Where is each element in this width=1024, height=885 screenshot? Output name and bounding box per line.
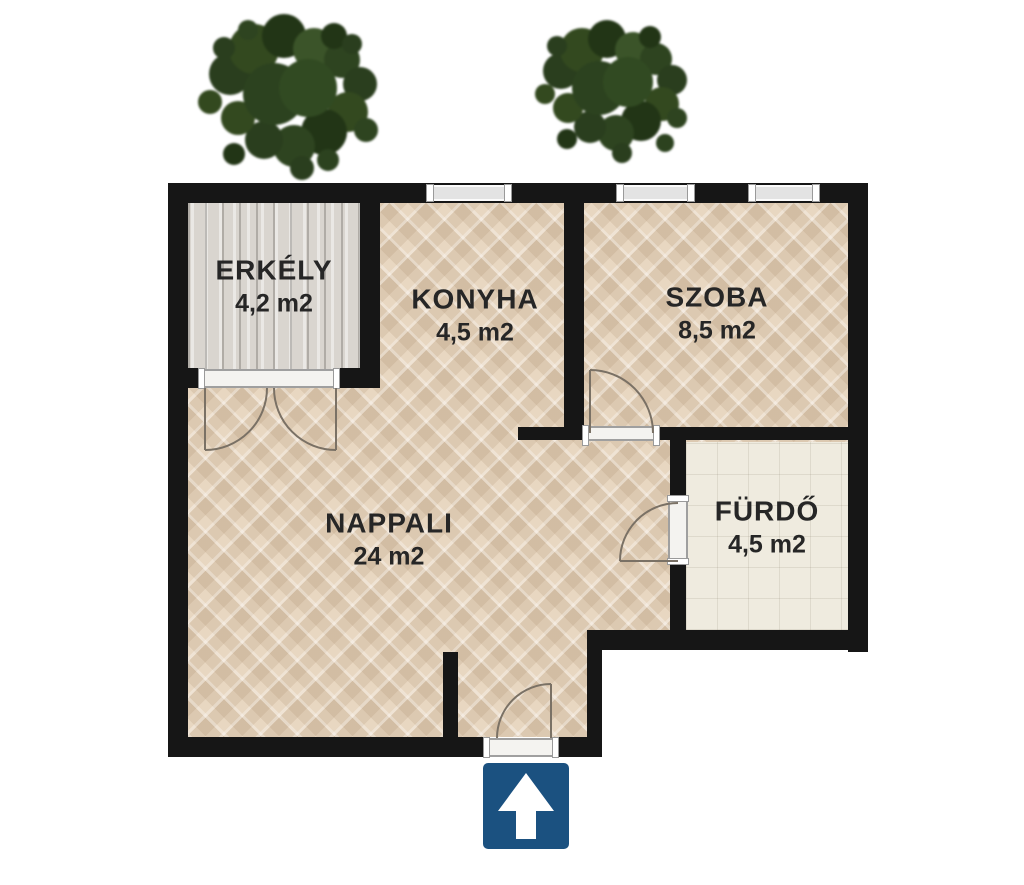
wall-bottom-left: [168, 737, 485, 757]
wall-balcony-right: [360, 202, 380, 388]
room-area: 4,2 m2: [215, 288, 332, 321]
tree-icon: [195, 8, 395, 190]
window-room-2: [750, 185, 818, 201]
room-label-nappali: NAPPALI 24 m2: [325, 507, 453, 574]
door-threshold-room: [584, 426, 658, 441]
room-name: SZOBA: [666, 281, 769, 315]
wall-left: [168, 183, 188, 757]
wall-balcony-bottom-b: [338, 368, 380, 388]
window-room-1: [618, 185, 693, 201]
floor-cutout: [602, 650, 868, 737]
wall-hall-right: [587, 630, 602, 757]
door-threshold-bathroom: [668, 497, 688, 563]
wall-bottom-right: [587, 630, 868, 650]
floor-plan: ERKÉLY 4,2 m2 KONYHA 4,5 m2 SZOBA 8,5 m2…: [0, 0, 1024, 885]
entrance-sign: [483, 763, 569, 849]
window-kitchen: [428, 185, 510, 201]
wall-bathroom-top: [658, 427, 848, 440]
door-threshold-entrance: [485, 738, 557, 757]
room-label-szoba: SZOBA 8,5 m2: [666, 281, 769, 348]
room-area: 24 m2: [325, 541, 453, 574]
room-label-furdo: FÜRDŐ 4,5 m2: [715, 495, 820, 562]
wall-right: [848, 183, 868, 652]
wall-entry-stub: [443, 652, 458, 737]
room-name: KONYHA: [411, 283, 538, 317]
wall-kitchen-room-divider: [564, 202, 584, 440]
room-area: 8,5 m2: [666, 315, 769, 348]
room-area: 4,5 m2: [411, 317, 538, 350]
room-name: FÜRDŐ: [715, 495, 820, 529]
wall-bathroom-left-upper: [670, 440, 686, 497]
door-threshold-balcony: [200, 369, 338, 388]
wall-bathroom-left-lower: [670, 563, 686, 630]
room-label-erkely: ERKÉLY 4,2 m2: [215, 254, 332, 321]
room-label-konyha: KONYHA 4,5 m2: [411, 283, 538, 350]
wall-kitchen-bottom: [518, 427, 564, 440]
room-name: NAPPALI: [325, 507, 453, 541]
tree-icon: [532, 10, 704, 172]
room-name: ERKÉLY: [215, 254, 332, 288]
arrow-up-icon: [483, 763, 569, 849]
room-area: 4,5 m2: [715, 529, 820, 562]
